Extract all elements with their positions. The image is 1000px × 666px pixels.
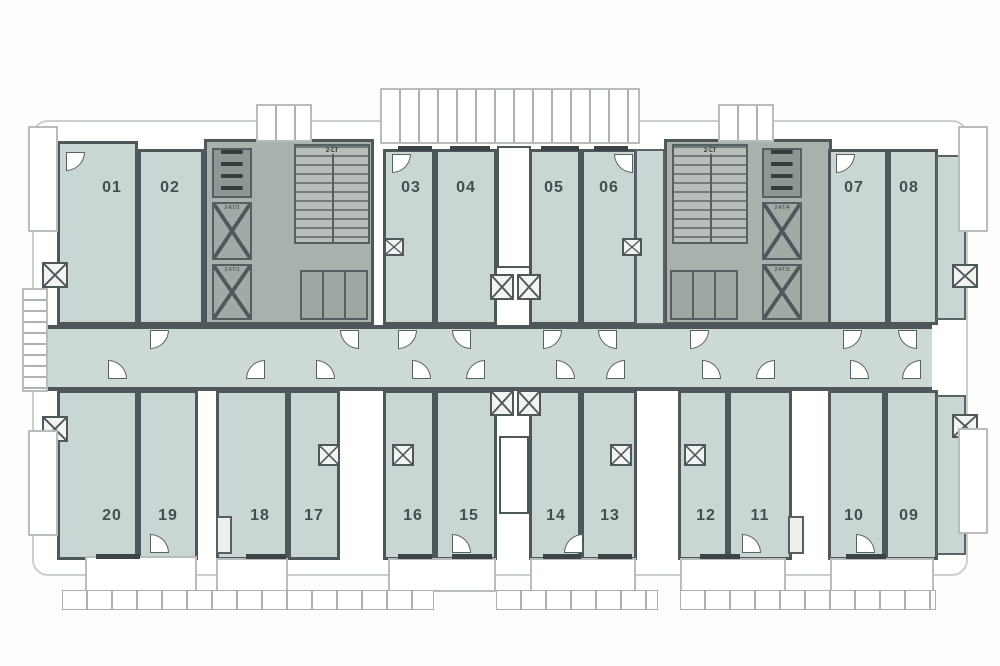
light-well [497,146,531,268]
unit-room [57,390,138,560]
elevator-label: 2-KT/4 [774,205,789,211]
unit-room [138,149,204,325]
balcony [28,430,58,536]
balcony [28,126,58,232]
washing-machine-icon [610,444,632,466]
shaft-box [216,516,232,554]
stair-divider [710,146,712,242]
balcony [958,428,988,534]
balcony-railing [62,590,434,610]
shaft-box [788,516,804,554]
balcony [958,126,988,232]
washing-machine-icon [684,444,706,466]
floor-plan-canvas: 2-LT2-LT2-KT/22-KT/12-KT/42-KT/301020304… [0,0,1000,666]
elevator-shaft: 2-KT/1 [212,264,252,320]
washing-machine-icon [490,390,514,416]
unit-number: 18 [250,507,270,525]
unit-number: 17 [304,507,324,525]
unit-bath-strip [635,149,665,325]
stairwell: 2-LT [672,144,748,244]
unit-number: 09 [899,507,919,525]
unit-number: 14 [546,507,566,525]
window-bar [246,554,286,559]
window-bar [450,146,490,151]
unit-room [888,149,938,325]
unit-room [435,149,497,325]
core-utility-rooms [300,270,368,320]
unit-room [581,390,637,560]
window-bar [598,554,632,559]
elevator-x-icon [764,266,800,318]
unit-room [728,390,792,560]
unit-number: 15 [459,507,479,525]
unit-number: 05 [544,179,564,197]
unit-number: 10 [844,507,864,525]
unit-number: 06 [599,179,619,197]
washing-machine-icon [952,264,978,288]
window-bar [452,554,492,559]
unit-number: 08 [899,179,919,197]
washing-machine-icon [490,274,514,300]
unit-number: 11 [751,507,770,525]
balcony [830,558,934,592]
balcony [680,558,786,592]
window-bar [541,146,579,151]
elevator-shaft: 2-KT/2 [212,202,252,260]
core-utility-rooms [670,270,738,320]
unit-room [678,390,728,560]
window-bar [594,146,628,151]
balcony [85,556,197,592]
unit-number: 16 [403,507,423,525]
window-bar [700,554,740,559]
balcony-railing [680,590,936,610]
stair-divider [332,146,334,242]
washing-machine-icon [42,262,68,288]
elevator-label: 2-KT/3 [774,267,789,273]
balcony [216,558,288,592]
balcony-railing [496,590,658,610]
service-shaft [212,148,252,198]
service-shaft [762,148,802,198]
washing-machine-icon [384,238,404,256]
unit-number: 12 [696,507,716,525]
unit-room [138,390,198,560]
window-bar [398,554,432,559]
elevator-label: 2-KT/2 [224,205,239,211]
unit-number: 02 [160,179,180,197]
unit-room [383,390,435,560]
balcony [718,104,774,142]
central-corridor [38,325,932,391]
balcony [388,558,496,592]
unit-room [885,390,938,560]
unit-number: 13 [600,507,620,525]
unit-number: 01 [102,179,122,197]
stairwell: 2-LT [294,144,370,244]
washing-machine-icon [517,390,541,416]
unit-room [288,390,340,560]
window-bar [543,554,581,559]
unit-room [383,149,435,325]
window-bar [398,146,432,151]
balcony [256,104,312,142]
balcony [380,88,640,144]
washing-machine-icon [318,444,340,466]
balcony [22,288,48,392]
unit-number: 07 [844,179,864,197]
unit-room [581,149,637,325]
unit-number: 03 [401,179,421,197]
washing-machine-icon [392,444,414,466]
unit-room [435,390,497,560]
unit-room [828,149,888,325]
stair-label: 2-LT [325,148,339,154]
elevator-shaft: 2-KT/3 [762,264,802,320]
washing-machine-icon [622,238,642,256]
unit-number: 04 [456,179,476,197]
elevator-label: 2-KT/1 [224,267,239,273]
unit-number: 19 [158,507,178,525]
elevator-x-icon [214,266,250,318]
window-bar [96,554,140,559]
light-well [499,436,529,514]
elevator-x-icon [764,204,800,258]
unit-number: 20 [102,507,122,525]
elevator-shaft: 2-KT/4 [762,202,802,260]
balcony [530,558,636,592]
stair-label: 2-LT [703,148,717,154]
washing-machine-icon [517,274,541,300]
elevator-x-icon [214,204,250,258]
window-bar [846,554,886,559]
